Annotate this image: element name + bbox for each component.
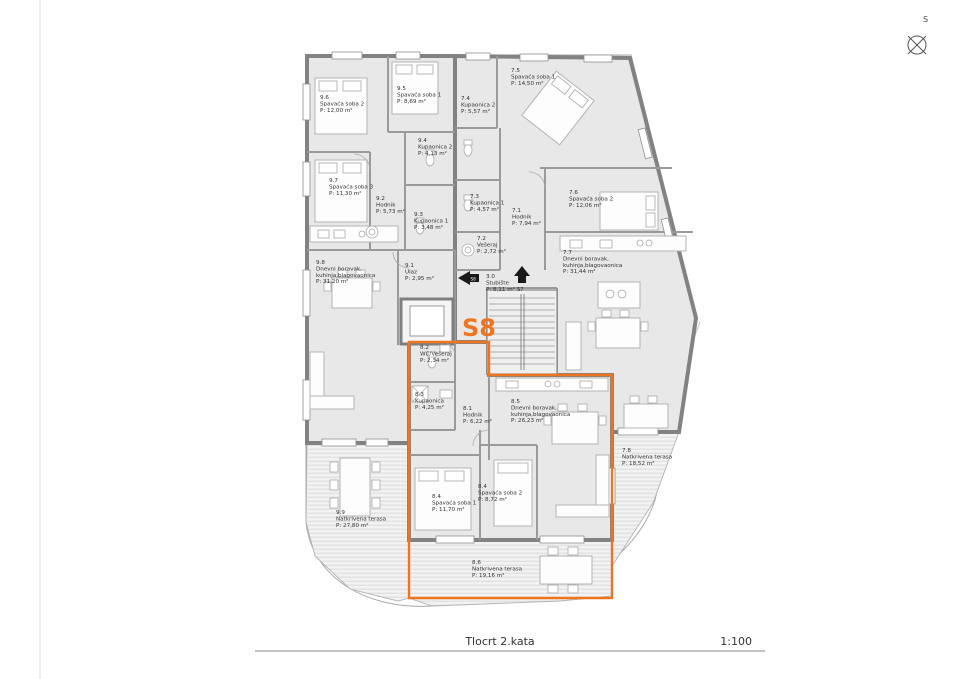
staircase [487,290,557,374]
kitchen-island [598,282,640,308]
kitchen-counter [496,378,608,391]
toilet [464,140,472,156]
drawing-scale: 1:100 [720,635,752,648]
kitchen-counter [560,236,686,251]
elevator [401,299,453,344]
compass: S [908,15,928,54]
compass-north-label: S [923,15,928,24]
washing-machine [366,226,378,238]
unit-s8-label: S8 [462,314,496,342]
floor-plan-canvas: S8 S8 S7 9.6Spavaća soba 2P: 12,00 m²9.5… [0,0,960,679]
kitchen-counter [310,226,398,242]
drawing-title: Tlocrt 2.kata [464,635,534,648]
washing-machine [462,244,474,256]
bed [415,468,471,530]
terrace-table [330,458,380,516]
title-block: Tlocrt 2.kata 1:100 [255,635,765,651]
stair-arrow-s8-label: S8 [471,277,477,282]
sink [440,390,452,398]
drawing-sheet: S8 S8 S7 9.6Spavaća soba 2P: 12,00 m²9.5… [0,0,960,679]
stair-arrow-s7-label: S7 [517,287,523,293]
sofa [566,322,581,370]
